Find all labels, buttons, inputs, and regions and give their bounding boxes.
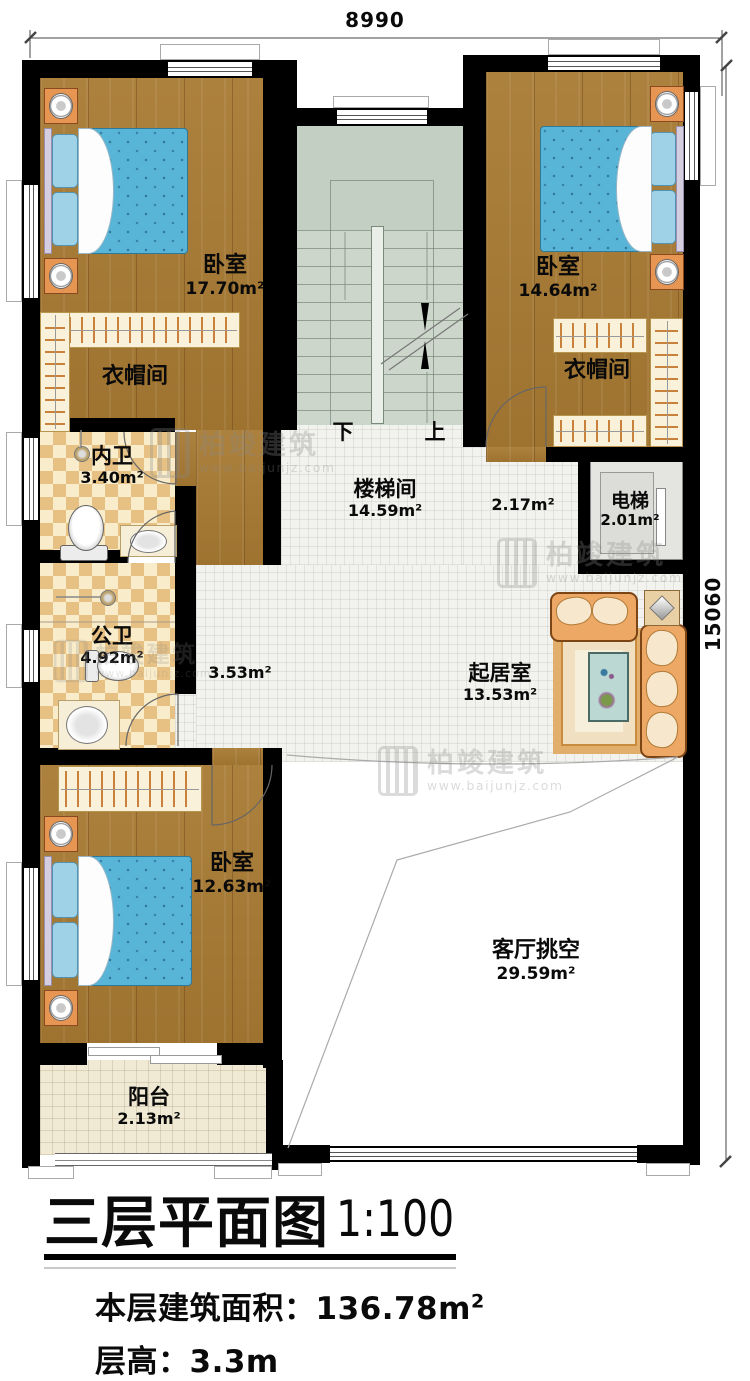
wardrobe: [62, 312, 240, 348]
window: [683, 92, 700, 180]
room-name: 楼梯间: [348, 477, 422, 502]
floor-door-gap-public-bath: [175, 694, 196, 750]
room-area: 12.63m²: [193, 877, 272, 897]
label-bath-public: 公卫 4.92m²: [80, 624, 143, 668]
bed-pillow: [650, 190, 676, 244]
label-bedroom-top-left: 卧室 17.70m²: [186, 253, 265, 299]
bed-pillow: [52, 862, 78, 918]
floor-area-value: 136.78m: [316, 1291, 471, 1327]
wardrobe: [553, 318, 647, 353]
stair-center-rail: [371, 226, 384, 424]
room-name: 卧室: [193, 851, 272, 877]
room-name: 衣帽间: [102, 364, 168, 390]
bed-pillow: [52, 134, 78, 188]
dimension-right-value: 15060: [701, 573, 725, 655]
room-name: 阳台: [117, 1085, 180, 1110]
wardrobe: [40, 312, 70, 432]
stair-direction: 上: [425, 420, 446, 445]
window: [168, 60, 252, 78]
room-area: 14.64m²: [519, 281, 598, 301]
bed-pillow: [52, 922, 78, 978]
floor-height-row: 层高：3.3m: [95, 1336, 279, 1381]
room-name: 衣帽间: [564, 358, 630, 384]
window: [337, 108, 427, 126]
label-hall-left: 3.53m²: [208, 664, 271, 683]
room-area: 29.59m²: [492, 964, 580, 984]
room-area: 14.59m²: [348, 502, 422, 521]
room-area: 17.70m²: [186, 279, 265, 299]
label-cloak-right: 衣帽间: [564, 358, 630, 384]
window-sill: [160, 44, 260, 60]
label-stair-up: 上: [425, 420, 446, 445]
corner-table-lamp: [644, 590, 680, 626]
label-hall-right: 2.17m²: [491, 496, 554, 515]
label-balcony: 阳台 2.13m²: [117, 1085, 180, 1129]
wardrobe: [650, 318, 683, 447]
wardrobe: [553, 415, 647, 447]
wall-stair-west: [281, 60, 297, 430]
title-underline-thin: [44, 1267, 456, 1269]
stair-direction: 下: [333, 420, 354, 445]
sink: [130, 530, 167, 553]
bed-headboard: [676, 126, 684, 252]
label-stairwell: 楼梯间 14.59m²: [348, 477, 422, 521]
window: [548, 55, 660, 72]
window: [22, 438, 40, 520]
room-name: 公卫: [80, 624, 143, 649]
nightstand: [44, 816, 78, 852]
void-boundary: [287, 755, 678, 1148]
nightstand: [650, 86, 684, 122]
toilet: [68, 505, 104, 551]
label-elevator: 电梯 2.01m²: [600, 490, 659, 530]
window: [22, 185, 40, 298]
floor-area-label: 本层建筑面积：: [95, 1291, 316, 1327]
room-name: 卧室: [519, 255, 598, 281]
wall-stair-window-right: [427, 108, 463, 126]
window-sill: [700, 86, 716, 186]
label-living: 起居室 13.53m²: [463, 661, 537, 705]
watermark-url: www.baijunjz.com: [427, 780, 564, 793]
room-area: 2.13m²: [117, 1110, 180, 1129]
floor-corridor-left: [196, 430, 263, 565]
wall-left-suite-east: [263, 60, 281, 565]
window-sill: [646, 1163, 690, 1176]
nightstand: [44, 990, 78, 1026]
bed-headboard: [44, 856, 52, 986]
wall-bedroom-bottom-north: [22, 748, 212, 765]
room-area: 4.92m²: [80, 649, 143, 668]
wall-bath-east: [175, 486, 196, 694]
plan-title: 三层平面图: [44, 1178, 329, 1259]
wall-right-outer: [683, 55, 700, 1165]
bed-pillow: [650, 132, 676, 186]
wall-elevator-left: [578, 462, 590, 560]
wall-stair-window-left: [297, 108, 337, 126]
floor-door-gap-suite-right: [486, 447, 546, 462]
room-area: 2.17m²: [491, 496, 554, 515]
wardrobe: [58, 766, 202, 812]
room-area: 3.53m²: [208, 664, 271, 683]
room-name: 卧室: [186, 253, 265, 279]
floor-plan-page: 8990 15060 卧室 17.70m² 卧室 14.64m² 衣帽间 衣帽间…: [0, 0, 750, 1381]
room-area: 13.53m²: [463, 686, 537, 705]
nightstand: [650, 254, 684, 290]
floor-door-gap-bedroom-bottom: [212, 748, 263, 765]
window-sill: [6, 180, 22, 302]
window-sill: [333, 96, 429, 108]
floor-area-row: 本层建筑面积：136.78m2: [95, 1283, 485, 1328]
label-bedroom-top-right: 卧室 14.64m²: [519, 255, 598, 301]
label-bedroom-bottom: 卧室 12.63m²: [193, 851, 272, 897]
nightstand: [44, 258, 78, 294]
floor-area-sup: 2: [471, 1291, 485, 1313]
label-void: 客厅挑空 29.59m²: [492, 938, 580, 984]
window-sill: [548, 39, 660, 55]
window-sill: [6, 432, 22, 526]
wall-stair-east: [463, 55, 486, 447]
room-name: 内卫: [80, 444, 143, 469]
nightstand: [44, 88, 78, 124]
window-sill: [278, 1163, 322, 1176]
bed-pillow: [52, 192, 78, 246]
window: [22, 868, 40, 980]
shower-head: [100, 590, 116, 606]
room-area: 2.01m²: [600, 512, 659, 530]
floor-door-gap-inner-bath: [175, 432, 196, 486]
wall-bedroom-bottom-south-a: [40, 1043, 87, 1065]
dimension-top-value: 8990: [345, 8, 405, 32]
label-stair-down: 下: [333, 420, 354, 445]
window-sill: [6, 862, 22, 986]
balcony-railing: [55, 1153, 272, 1166]
room-name: 起居室: [463, 661, 537, 686]
window: [330, 1146, 637, 1162]
sliding-door-leaf: [150, 1055, 222, 1064]
wall-void-south-a: [281, 1145, 330, 1163]
coffee-table: [588, 652, 629, 722]
plan-scale: 1:100: [336, 1190, 454, 1248]
room-area: 3.40m²: [80, 469, 143, 488]
title-underline: [44, 1254, 456, 1260]
sink: [66, 706, 108, 744]
wall-suite-right-bottom: [546, 447, 683, 462]
label-cloak-left: 衣帽间: [102, 364, 168, 390]
label-bath-inner: 内卫 3.40m²: [80, 444, 143, 488]
window-sill: [6, 624, 22, 688]
wall-void-south-b: [637, 1145, 683, 1163]
room-name: 电梯: [600, 490, 659, 512]
wall-bedroom-bottom-east: [263, 748, 282, 1068]
room-name: 客厅挑空: [492, 938, 580, 964]
wall-elevator-bottom: [578, 560, 683, 574]
bed-headboard: [44, 128, 52, 254]
window: [22, 630, 40, 682]
